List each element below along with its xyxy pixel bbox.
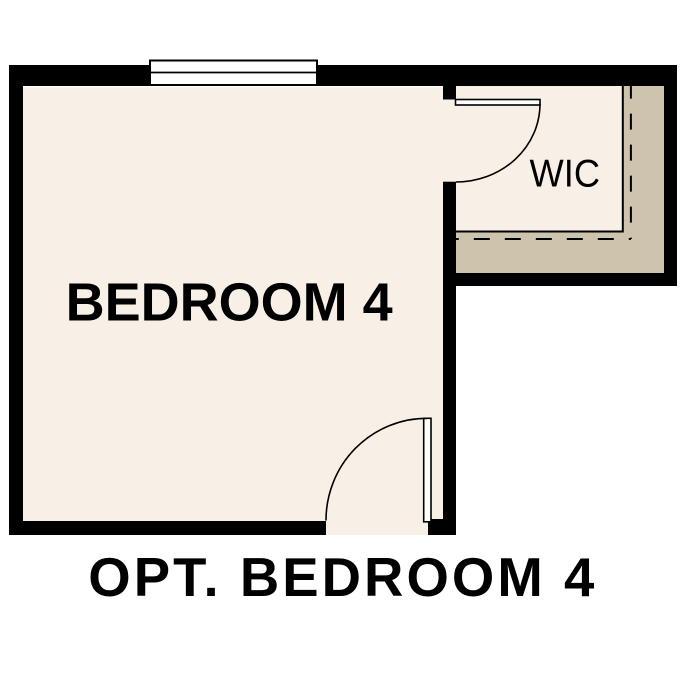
svg-text:WIC: WIC bbox=[530, 152, 601, 195]
svg-text:OPT. BEDROOM 4: OPT. BEDROOM 4 bbox=[88, 547, 597, 608]
svg-text:BEDROOM 4: BEDROOM 4 bbox=[66, 273, 393, 333]
